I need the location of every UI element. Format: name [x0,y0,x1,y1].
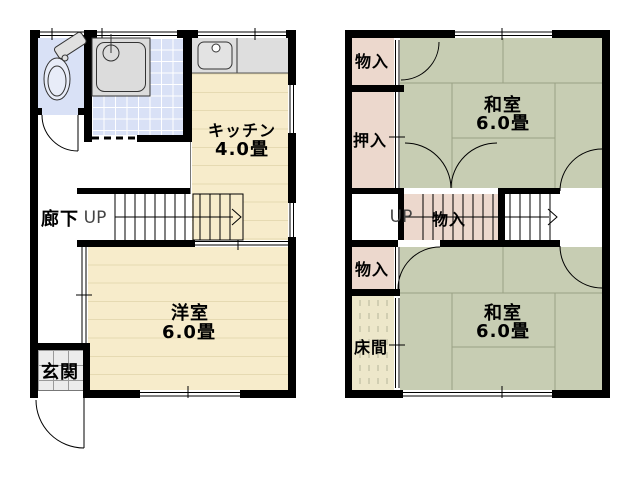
entrance-label: 玄関 [41,358,79,384]
floor-plan: キッチン 4.0畳 廊下 UP 洋室 6.0畳 玄関 物入 押入 和室 6.0畳… [0,0,640,480]
stair-arrow [548,209,557,225]
storage-bottom-label: 物入 [355,256,389,280]
window [403,386,552,398]
tatami-upper-size-label: 6.0畳 [476,109,530,135]
tokonoma-label: 床間 [354,334,388,358]
bathtub-icon [92,34,150,96]
stairs-2f [405,194,557,240]
tatami-lower-door-arc [398,247,440,289]
storage-double-door-arc-left [405,143,451,188]
faucet-icon [212,44,220,52]
storage-mid-label: 物入 [432,206,466,230]
storage-double-door-arc-right [451,143,497,188]
kitchen-sink-icon [192,38,288,73]
hallway-label: 廊下 [41,205,79,231]
window [198,28,286,40]
kitchen-size-label: 4.0畳 [215,135,269,161]
window [288,85,296,133]
entrance-door-arc [36,400,84,448]
landing-to-upper-room-door-arc [560,149,602,191]
landing-to-lower-room-door-arc [560,246,602,288]
stairs-up-label-2f: UP [390,207,413,227]
stairs-1f [115,194,243,240]
plan-linework [0,0,640,480]
storage-top-label: 物入 [355,48,389,72]
western-room-size-label: 6.0畳 [162,318,216,344]
toilet-door-arc [42,115,78,151]
stairs-up-label-1f: UP [84,208,107,228]
closet-label: 押入 [353,127,387,151]
toilet-icon [44,31,87,100]
tatami-upper-door-arc [401,42,439,80]
window [140,386,240,398]
tatami-lower-size-label: 6.0畳 [476,317,530,343]
window [288,203,296,237]
